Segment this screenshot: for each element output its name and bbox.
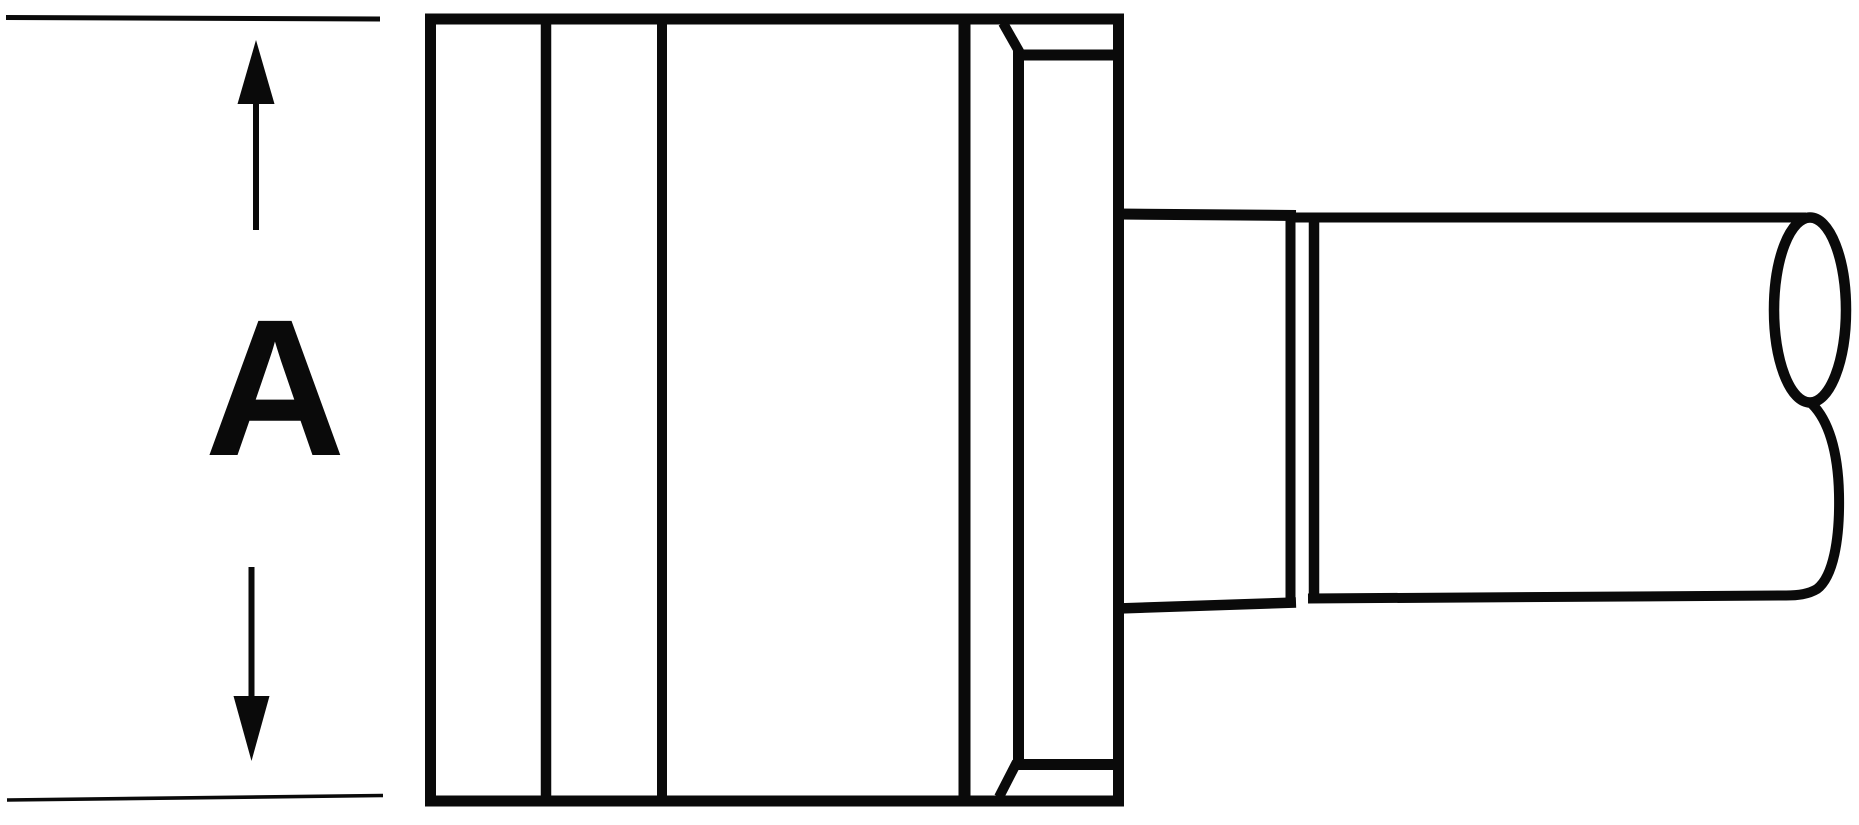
svg-text:A: A — [205, 279, 346, 497]
